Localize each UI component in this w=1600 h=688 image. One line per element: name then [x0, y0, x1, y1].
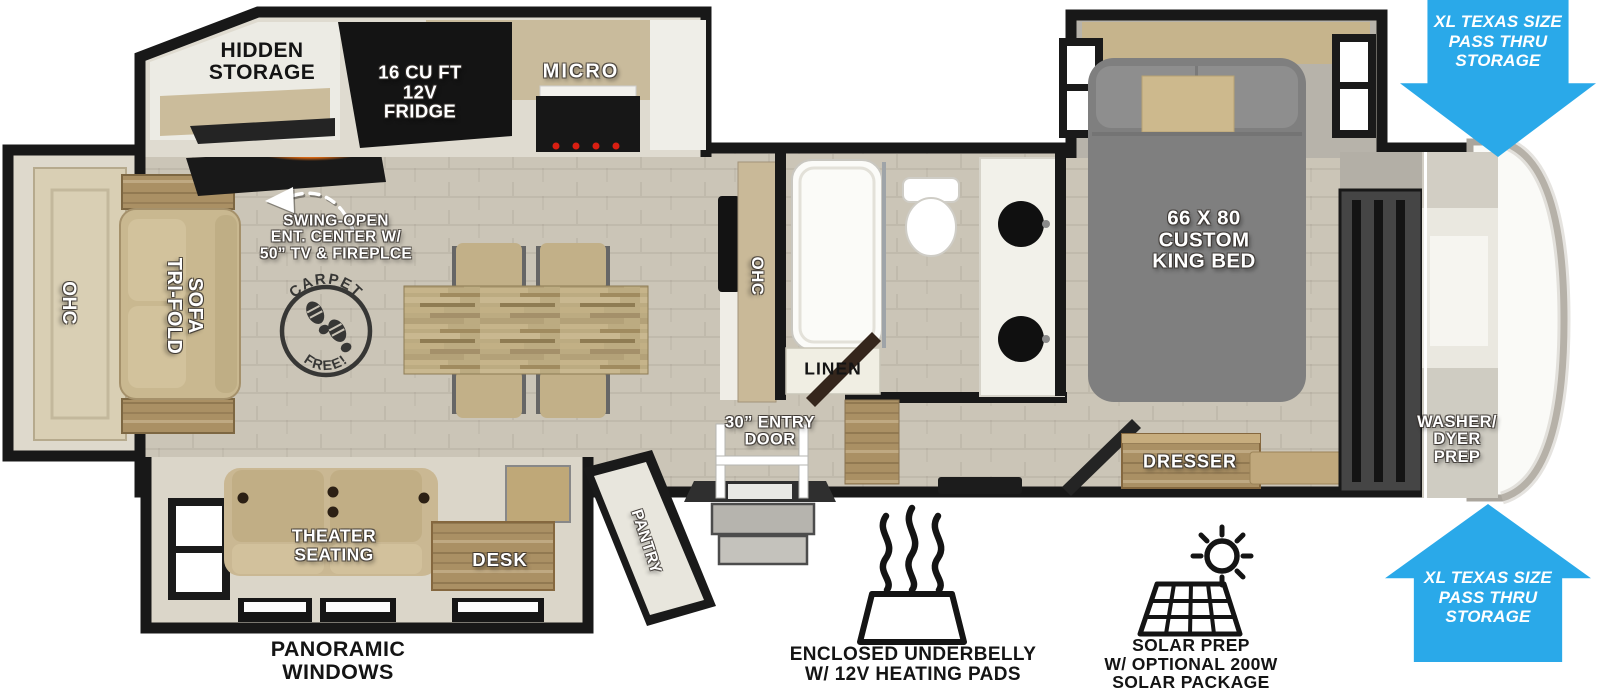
stove	[536, 96, 640, 152]
wardrobe-closet	[1340, 152, 1422, 492]
fridge	[338, 22, 512, 148]
bedroom-window	[1336, 38, 1372, 134]
heating-pad-icon	[860, 508, 964, 642]
slide-window	[320, 598, 396, 622]
pass-thru-storage-label-bottom: XL TEXAS SIZE PASS THRU STORAGE	[1385, 568, 1591, 627]
desk-chair	[506, 466, 570, 522]
bed-bench	[1250, 452, 1342, 484]
front-lounge-slideout	[146, 457, 588, 628]
pass-thru-storage-label-top: XL TEXAS SIZE PASS THRU STORAGE	[1400, 12, 1596, 71]
trifold-sofa	[120, 175, 240, 433]
tub-shower	[792, 160, 886, 350]
floorplan-drawing: CARPET FREE!	[0, 0, 1600, 688]
king-bed	[1088, 58, 1306, 402]
dining-chair	[452, 370, 526, 418]
double-sink-vanity	[980, 158, 1064, 396]
theater-seating	[224, 468, 438, 576]
bed-tray	[1142, 76, 1234, 132]
hall-window	[938, 477, 1022, 494]
bedroom-wall	[1055, 148, 1066, 396]
tv-panel	[718, 196, 740, 292]
bathroom-wall	[775, 148, 786, 400]
dining-chair	[536, 243, 610, 291]
slide-window	[452, 598, 544, 622]
dining-table	[404, 286, 648, 374]
entry-steps	[712, 504, 814, 564]
solar-prep-icon	[1140, 527, 1251, 634]
toilet	[903, 178, 959, 256]
washer-dryer-prep-area	[1422, 152, 1498, 498]
hall-partition	[845, 400, 899, 484]
slide-window	[172, 502, 226, 596]
dining-chair	[452, 243, 526, 291]
dresser	[1122, 434, 1260, 488]
headboard-shelf	[1082, 22, 1370, 64]
dining-chair	[536, 370, 610, 418]
slide-window	[238, 598, 312, 622]
kitchen-ohc-cabinet	[718, 162, 776, 402]
desk	[432, 522, 554, 590]
floorplan-canvas: CARPET FREE!	[0, 0, 1600, 688]
kitchen-slideout	[140, 12, 706, 157]
